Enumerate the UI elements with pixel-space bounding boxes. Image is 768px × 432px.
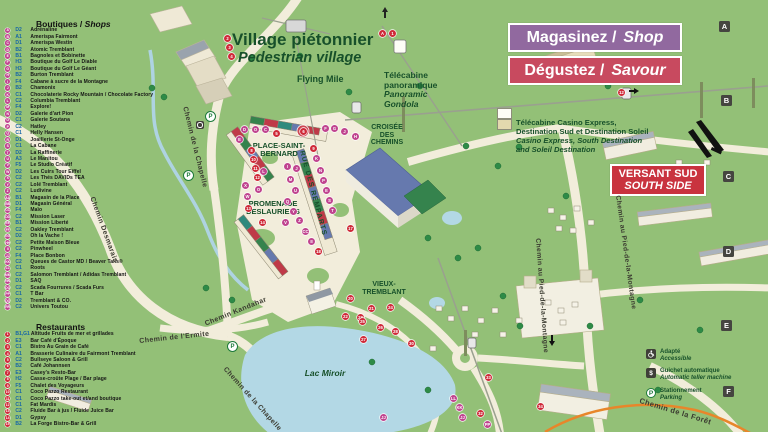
map-marker: JJ (459, 414, 466, 421)
shop-marker-icon: NN (5, 279, 10, 284)
pano-line4: Gondola (384, 100, 437, 110)
shop-grid-code: C2 (15, 214, 29, 220)
savour-banner-en: Savour (611, 62, 665, 80)
shop-grid-code: C2 (15, 304, 29, 310)
shop-name: Explore! (30, 104, 51, 110)
shop-name: Le Manitou (30, 156, 57, 162)
restaurant-grid-code: E3 (15, 370, 29, 376)
shop-marker-icon: P (5, 124, 10, 129)
panoramic-gondola-label: Télécabine panoramique Panoramic Gondola (384, 71, 437, 109)
atm-en: Automatic teller machine (660, 375, 731, 382)
shop-name: Lolë Tremblant (30, 182, 67, 188)
map-marker: 26 (377, 324, 384, 331)
shop-grid-code: D1 (15, 137, 29, 143)
map-marker: J (293, 165, 300, 172)
shop-name: Chocolaterie Rocky Mountain / Chocolate … (30, 92, 153, 98)
shop-grid-code: C1 (15, 117, 29, 123)
restaurant-grid-code: C2 (15, 357, 29, 363)
note-line1: Télécabine Casino Express, (516, 118, 648, 127)
shop-grid-code: D2 (15, 27, 29, 33)
shop-marker-icon: Y (5, 182, 10, 187)
shop-grid-code: H3 (15, 59, 29, 65)
shop-marker-icon: PP (5, 291, 10, 296)
shop-grid-code: C2 (15, 259, 29, 265)
map-marker: 2 (224, 35, 231, 42)
shop-marker-icon: FF (5, 227, 10, 232)
shop-grid-code: D2 (15, 111, 29, 117)
shop-name: Queues de Castor MD / Beaver Tails® (30, 259, 122, 265)
map-marker: 25 (359, 318, 366, 325)
shop-banner-en: Shop (623, 29, 663, 47)
shop-grid-code: C2 (15, 285, 29, 291)
restaurant-list-item: 15 B2 La Forge Bistro-Bar & Grill (5, 421, 136, 427)
shop-name: Les Cuirs Tour Eiffel (30, 169, 81, 175)
shop-marker-icon: HH (5, 240, 10, 245)
croisee-des-chemins-label: CROISÉE DES CHEMINS (366, 124, 408, 147)
shop-grid-code: D2 (15, 169, 29, 175)
shop-name: Columbia Tremblant (30, 98, 80, 104)
map-marker: A (379, 30, 386, 37)
shop-grid-code: D1 (15, 40, 29, 46)
shop-name: Mission Laser (30, 214, 65, 220)
map-marker: 18 (315, 248, 322, 255)
atm-icon: $ (646, 368, 656, 378)
restaurant-marker-icon: 15 (5, 422, 10, 427)
shop-grid-code: B1 (15, 195, 29, 201)
map-marker: CC (302, 228, 309, 235)
shops-list: A D2 Adrénaline B A1 Amerispa Fairmont C… (5, 27, 153, 310)
shop-marker-icon: K (5, 92, 10, 97)
restaurants-list: 1 B1,G1 Altitude Fruits de mer et grilla… (5, 331, 136, 428)
shop-marker-icon: R (5, 137, 10, 142)
shop-grid-code: C1 (15, 291, 29, 297)
vieux-tremblant-label: VIEUX-TREMBLANT (358, 281, 410, 296)
shop-name: La Cabane (30, 143, 56, 149)
shop-marker-icon: GG (5, 234, 10, 239)
map-marker: 12 (618, 89, 625, 96)
shop-marker-icon: II (5, 246, 10, 251)
village-title-en: Pedestrian village (238, 50, 361, 66)
shop-name: Amerispa Fairmont (30, 34, 77, 40)
map-marker: 3 (226, 44, 233, 51)
map-marker: KK (456, 404, 463, 411)
shop-grid-code: C2 (15, 240, 29, 246)
shop-marker-icon: EE (5, 221, 10, 226)
map-marker: Y (290, 208, 297, 215)
map-marker: 17 (347, 225, 354, 232)
shop-grid-code: F4 (15, 253, 29, 259)
map-marker: 1 (389, 30, 396, 37)
map-marker: II (308, 238, 315, 245)
map-marker: JJ (380, 414, 387, 421)
restaurant-name: Coco Pazzo take-out et/and boutique (30, 396, 121, 402)
map-marker: H (352, 133, 359, 140)
shop-name: Boutique du Golf Le Géant (30, 66, 96, 72)
shop-grid-code: B1 (15, 220, 29, 226)
shop-grid-code: C2 (15, 98, 29, 104)
restaurant-grid-code: C2 (15, 408, 29, 414)
shop-marker-icon: E (5, 53, 10, 58)
shop-grid-code: D2 (15, 233, 29, 239)
resort-map: Boutiques / Shops A D2 Adrénaline B A1 A… (0, 0, 768, 432)
map-marker: 21 (368, 305, 375, 312)
map-marker: I (284, 163, 291, 170)
shop-name: T Bar (30, 291, 43, 297)
restaurant-name: Bar Café d'Époque (30, 338, 76, 344)
restaurant-grid-code: C1 (15, 402, 29, 408)
legend-parking: P Stationnement Parking (646, 388, 702, 402)
restaurant-marker-icon: 2 (5, 338, 10, 343)
map-marker: 27 (360, 336, 367, 343)
north-arrow-icon (384, 9, 386, 18)
shop-grid-code: B2 (15, 85, 29, 91)
map-marker: 14 (259, 219, 266, 226)
shop-name: Bagnoles et Bobinette (30, 53, 85, 59)
restaurant-name: Coco Pazzo Restaurant (30, 389, 88, 395)
shop-grid-code: C2 (15, 246, 29, 252)
shop-marker-icon: RR (5, 304, 10, 309)
shop-grid-code: C2 (15, 182, 29, 188)
note-line2: Destination Sud et Destination Soleil (516, 127, 648, 136)
legend-accessible: Adapté Accessible (646, 349, 691, 363)
shop-name: Scada Fourrures / Scada Furs (30, 285, 104, 291)
map-marker (196, 121, 204, 129)
accessible-en: Accessible (660, 356, 691, 363)
lift-direction-arrow-icon (629, 90, 637, 92)
shop-marker-icon: O (5, 118, 10, 123)
shop-name: Boutique du Golf Le Diable (30, 59, 97, 65)
restaurant-marker-icon: 10 (5, 389, 10, 394)
shop-name: Joaillerie St-Onge (30, 137, 74, 143)
map-marker: W (244, 193, 251, 200)
shop-marker-icon: Q (5, 131, 10, 136)
shop-grid-code: F4 (15, 79, 29, 85)
map-marker: C (262, 126, 269, 133)
shop-name: Pinwheel (30, 246, 52, 252)
map-marker: 5 (273, 130, 280, 137)
shop-marker-icon: DD (5, 214, 10, 219)
shop-name: Le Studio Créatif (30, 162, 72, 168)
shop-marker-icon: OO (5, 285, 10, 290)
restaurant-grid-code: C1 (15, 344, 29, 350)
restaurant-grid-code: A1 (15, 351, 29, 357)
legend-atm: $ Guichet automatique Automatic teller m… (646, 368, 731, 382)
restaurant-grid-code: F5 (15, 383, 29, 389)
parking-en: Parking (660, 395, 702, 402)
map-marker: X (242, 182, 249, 189)
shop-name: Salomon Tremblant / Adidas Tremblant (30, 272, 126, 278)
map-marker: 6 (300, 128, 307, 135)
savour-banner-fr: Dégustez / (524, 62, 604, 80)
shop-grid-code: D1 (15, 201, 29, 207)
shop-name: Atomic Tremblant (30, 47, 74, 53)
shop-name: Tremblant & CO. (30, 298, 71, 304)
restaurant-name: Casey's Resto-Bar (30, 370, 76, 376)
shop-marker-icon: QQ (5, 298, 10, 303)
shop-name: Oh la Vache ! (30, 233, 63, 239)
versant-en: SOUTH SIDE (624, 180, 691, 192)
shop-marker-icon: Z (5, 188, 10, 193)
restaurant-marker-icon: 6 (5, 364, 10, 369)
restaurant-marker-icon: 13 (5, 409, 10, 414)
map-marker: O (252, 126, 259, 133)
map-marker: M (287, 176, 294, 183)
map-marker: 20 (347, 295, 354, 302)
savour-banner: Dégustez / Savour (508, 56, 682, 85)
restaurant-name: Casse-croûte Plage / Bar plage (30, 376, 106, 382)
map-marker: G (331, 125, 338, 132)
shop-banner-fr: Magasinez / (527, 29, 617, 47)
shop-marker-icon: U (5, 156, 10, 161)
restaurant-list-item: 4 A1 Brasserie Culinaire du Fairmont Tre… (5, 350, 136, 356)
shop-marker-icon: S (5, 143, 10, 148)
restaurant-name: Brasserie Culinaire du Fairmont Tremblan… (30, 351, 135, 357)
grid-letter-chip: F (723, 386, 734, 397)
restaurant-list-item: 11 C1 Coco Pazzo take-out et/and boutiqu… (5, 395, 136, 401)
map-marker: Q (284, 198, 291, 205)
restaurant-name: Chalet des Voyageurs (30, 383, 84, 389)
map-marker: D (241, 126, 248, 133)
map-marker: U (292, 187, 299, 194)
note-line4: and Soleil Destination (516, 145, 648, 154)
shop-name: Magasin de la Place (30, 195, 79, 201)
restaurant-grid-code: B1,G1 (15, 331, 29, 337)
map-marker: Z (296, 217, 303, 224)
map-marker: O (255, 186, 262, 193)
lift-chip-white (497, 108, 512, 119)
map-marker: 12 (254, 174, 261, 181)
shop-name: Adrénaline (30, 27, 57, 33)
restaurant-name: Café Johannsen (30, 363, 70, 369)
grid-letter-chip: A (719, 21, 730, 32)
shop-marker-icon: X (5, 176, 10, 181)
note-line3: Casino Express, South Destination (516, 136, 648, 145)
shop-list-item: RR C2 Univers Toutou (5, 304, 153, 310)
map-marker: 33 (485, 374, 492, 381)
shop-marker-icon: I (5, 79, 10, 84)
restaurant-grid-code: C1 (15, 396, 29, 402)
shop-name: SAQ (30, 278, 41, 284)
shop-marker-icon: LL (5, 266, 10, 271)
map-marker: 30 (408, 340, 415, 347)
shop-marker-icon: G (5, 66, 10, 71)
restaurant-marker-icon: 7 (5, 370, 10, 375)
shop-grid-code: F4 (15, 207, 29, 213)
versant-fr: VERSANT SUD (619, 168, 698, 180)
grid-letter-chip: D (723, 246, 734, 257)
shop-marker-icon: V (5, 163, 10, 168)
shop-marker-icon: C (5, 40, 10, 45)
restaurant-marker-icon: 1 (5, 332, 10, 337)
casino-express-note: Télécabine Casino Express, Destination S… (516, 118, 648, 154)
atm-fr: Guichet automatique (660, 368, 720, 374)
restaurant-name: Bistro Au Grain de Café (30, 344, 89, 350)
restaurant-marker-icon: 3 (5, 344, 10, 349)
map-marker: K (313, 155, 320, 162)
map-marker: 10 (250, 156, 257, 163)
restaurant-grid-code: B2 (15, 421, 29, 427)
shop-list-item: K C1 Chocolaterie Rocky Mountain / Choco… (5, 91, 153, 97)
shop-name: Univers Toutou (30, 304, 68, 310)
shop-name: Cabane à sucre de la Montagne (30, 79, 108, 85)
shop-marker-icon: B (5, 34, 10, 39)
shop-name: Galerie d'art Pion (30, 111, 73, 117)
shop-marker-icon: KK (5, 259, 10, 264)
restaurant-marker-icon: 14 (5, 415, 10, 420)
restaurant-name: La Forge Bistro-Bar & Grill (30, 421, 96, 427)
shop-marker-icon: M (5, 105, 10, 110)
grid-letter-chip: C (723, 171, 734, 182)
shop-name: Roots (30, 265, 45, 271)
shop-grid-code: C2 (15, 272, 29, 278)
shop-name: Hatley (30, 124, 46, 130)
village-title-fr: Village piétonnier (232, 30, 373, 50)
shop-marker-icon: AA (5, 195, 10, 200)
shop-grid-code: C2 (15, 175, 29, 181)
map-marker: 32 (477, 410, 484, 417)
shop-grid-code: F5 (15, 162, 29, 168)
map-marker: 34 (537, 403, 544, 410)
shop-grid-code: C1 (15, 265, 29, 271)
map-marker: LL (450, 395, 457, 402)
shop-name: Oakley Tremblant (30, 227, 73, 233)
map-marker: E (323, 187, 330, 194)
parking-fr: Stationnement (660, 388, 702, 394)
place-saint-bernard-label: PLACE-SAINT-BERNARD (252, 142, 306, 157)
shop-grid-code: C1 (15, 130, 29, 136)
shop-grid-code: D2 (15, 150, 29, 156)
map-marker: F (322, 125, 329, 132)
shop-name: Les Thés DAVIDs TEA (30, 175, 84, 181)
versant-sud-banner: VERSANT SUD SOUTH SIDE (610, 164, 706, 196)
restaurant-grid-code: H2 (15, 376, 29, 382)
restaurant-marker-icon: 9 (5, 383, 10, 388)
shop-grid-code: A3 (15, 156, 29, 162)
restaurant-grid-code: D1 (15, 415, 29, 421)
shop-name: Petite Maison Bleue (30, 240, 79, 246)
map-marker: 4 (228, 53, 235, 60)
shop-grid-code: D1 (15, 278, 29, 284)
shop-grid-code: C2 (15, 227, 29, 233)
shop-marker-icon: T (5, 150, 10, 155)
shop-marker-icon: L (5, 98, 10, 103)
restaurant-name: Fluide Bar à jus / Fluide Juice Bar (30, 408, 114, 414)
shop-grid-code: A1 (15, 34, 29, 40)
flying-mile-label: Flying Mile (297, 74, 344, 84)
shop-marker-icon: W (5, 169, 10, 174)
shop-name: Place Bonbon (30, 253, 65, 259)
shop-name: Magasin Général (30, 201, 72, 207)
shop-marker-icon: CC (5, 208, 10, 213)
map-marker: 11 (252, 165, 259, 172)
shop-name: Mission Liberté (30, 220, 68, 226)
map-marker: T (329, 207, 336, 214)
restaurant-marker-icon: 11 (5, 396, 10, 401)
shop-name: Galerie Soutana (30, 117, 70, 123)
map-marker: P (183, 170, 194, 181)
map-marker: J (341, 128, 348, 135)
restaurant-grid-code: B2 (15, 363, 29, 369)
restaurant-marker-icon: 5 (5, 357, 10, 362)
lift-chip-tan (497, 119, 512, 130)
shop-name: La Raffinerie (30, 150, 62, 156)
shop-name: Burton Tremblant (30, 72, 73, 78)
restaurant-marker-icon: 12 (5, 402, 10, 407)
map-marker: 28 (392, 328, 399, 335)
shop-grid-code: B2 (15, 72, 29, 78)
shop-marker-icon: D (5, 47, 10, 52)
shop-marker-icon: N (5, 111, 10, 116)
restaurant-name: Gypsy (30, 415, 46, 421)
shop-grid-code: D2 (15, 298, 29, 304)
map-marker: E (236, 136, 243, 143)
lac-miroir-label: Lac Miroir (303, 369, 347, 378)
grid-letter-chip: B (721, 95, 732, 106)
shop-grid-code: B1 (15, 53, 29, 59)
map-marker: V (282, 219, 289, 226)
road-direction-arrow-icon (551, 335, 553, 344)
shop-banner: Magasinez / Shop (508, 23, 682, 52)
restaurant-marker-icon: 8 (5, 377, 10, 382)
shop-grid-code: C2 (15, 188, 29, 194)
grid-letter-chip: E (721, 320, 732, 331)
restaurant-name: Fat Mardis (30, 402, 56, 408)
shop-grid-code: H3 (15, 66, 29, 72)
map-marker: 13 (245, 205, 252, 212)
restaurant-name: Bullseye Saloon & Grill (30, 357, 87, 363)
accessible-fr: Adapté (660, 349, 680, 355)
shop-name: Amerispa Westin (30, 40, 72, 46)
map-marker: L (260, 168, 267, 175)
shop-marker-icon: MM (5, 272, 10, 277)
parking-icon: P (646, 388, 656, 398)
shop-grid-code: F4 (15, 104, 29, 110)
shop-name: Helly Hansen (30, 130, 63, 136)
map-marker: N (317, 167, 324, 174)
shop-name: Chamonix (30, 85, 55, 91)
map-marker: P (320, 177, 327, 184)
map-marker: P (205, 111, 216, 122)
map-marker: 9 (310, 145, 317, 152)
shop-marker-icon: J (5, 85, 10, 90)
map-marker: 22 (342, 313, 349, 320)
restaurant-grid-code: E3 (15, 338, 29, 344)
shop-marker-icon: A (5, 28, 10, 33)
shop-name: Ludivine (30, 188, 51, 194)
shop-grid-code: B2 (15, 47, 29, 53)
map-marker: PP (484, 421, 491, 428)
map-marker: S (326, 197, 333, 204)
map-marker: 24 (387, 304, 394, 311)
shop-marker-icon: H (5, 73, 10, 78)
shop-marker-icon: BB (5, 201, 10, 206)
shop-grid-code: C1 (15, 92, 29, 98)
shop-marker-icon: F (5, 60, 10, 65)
restaurant-grid-code: C1 (15, 389, 29, 395)
restaurant-marker-icon: 4 (5, 351, 10, 356)
map-marker: P (227, 341, 238, 352)
shop-name: Maïo (30, 207, 42, 213)
restaurant-name: Altitude Fruits de mer et grillades (31, 331, 114, 337)
shop-grid-code: C2 (15, 124, 29, 130)
shop-grid-code: C1 (15, 143, 29, 149)
map-marker: 8 (248, 147, 255, 154)
shop-marker-icon: JJ (5, 253, 10, 258)
wheelchair-icon (646, 349, 656, 359)
